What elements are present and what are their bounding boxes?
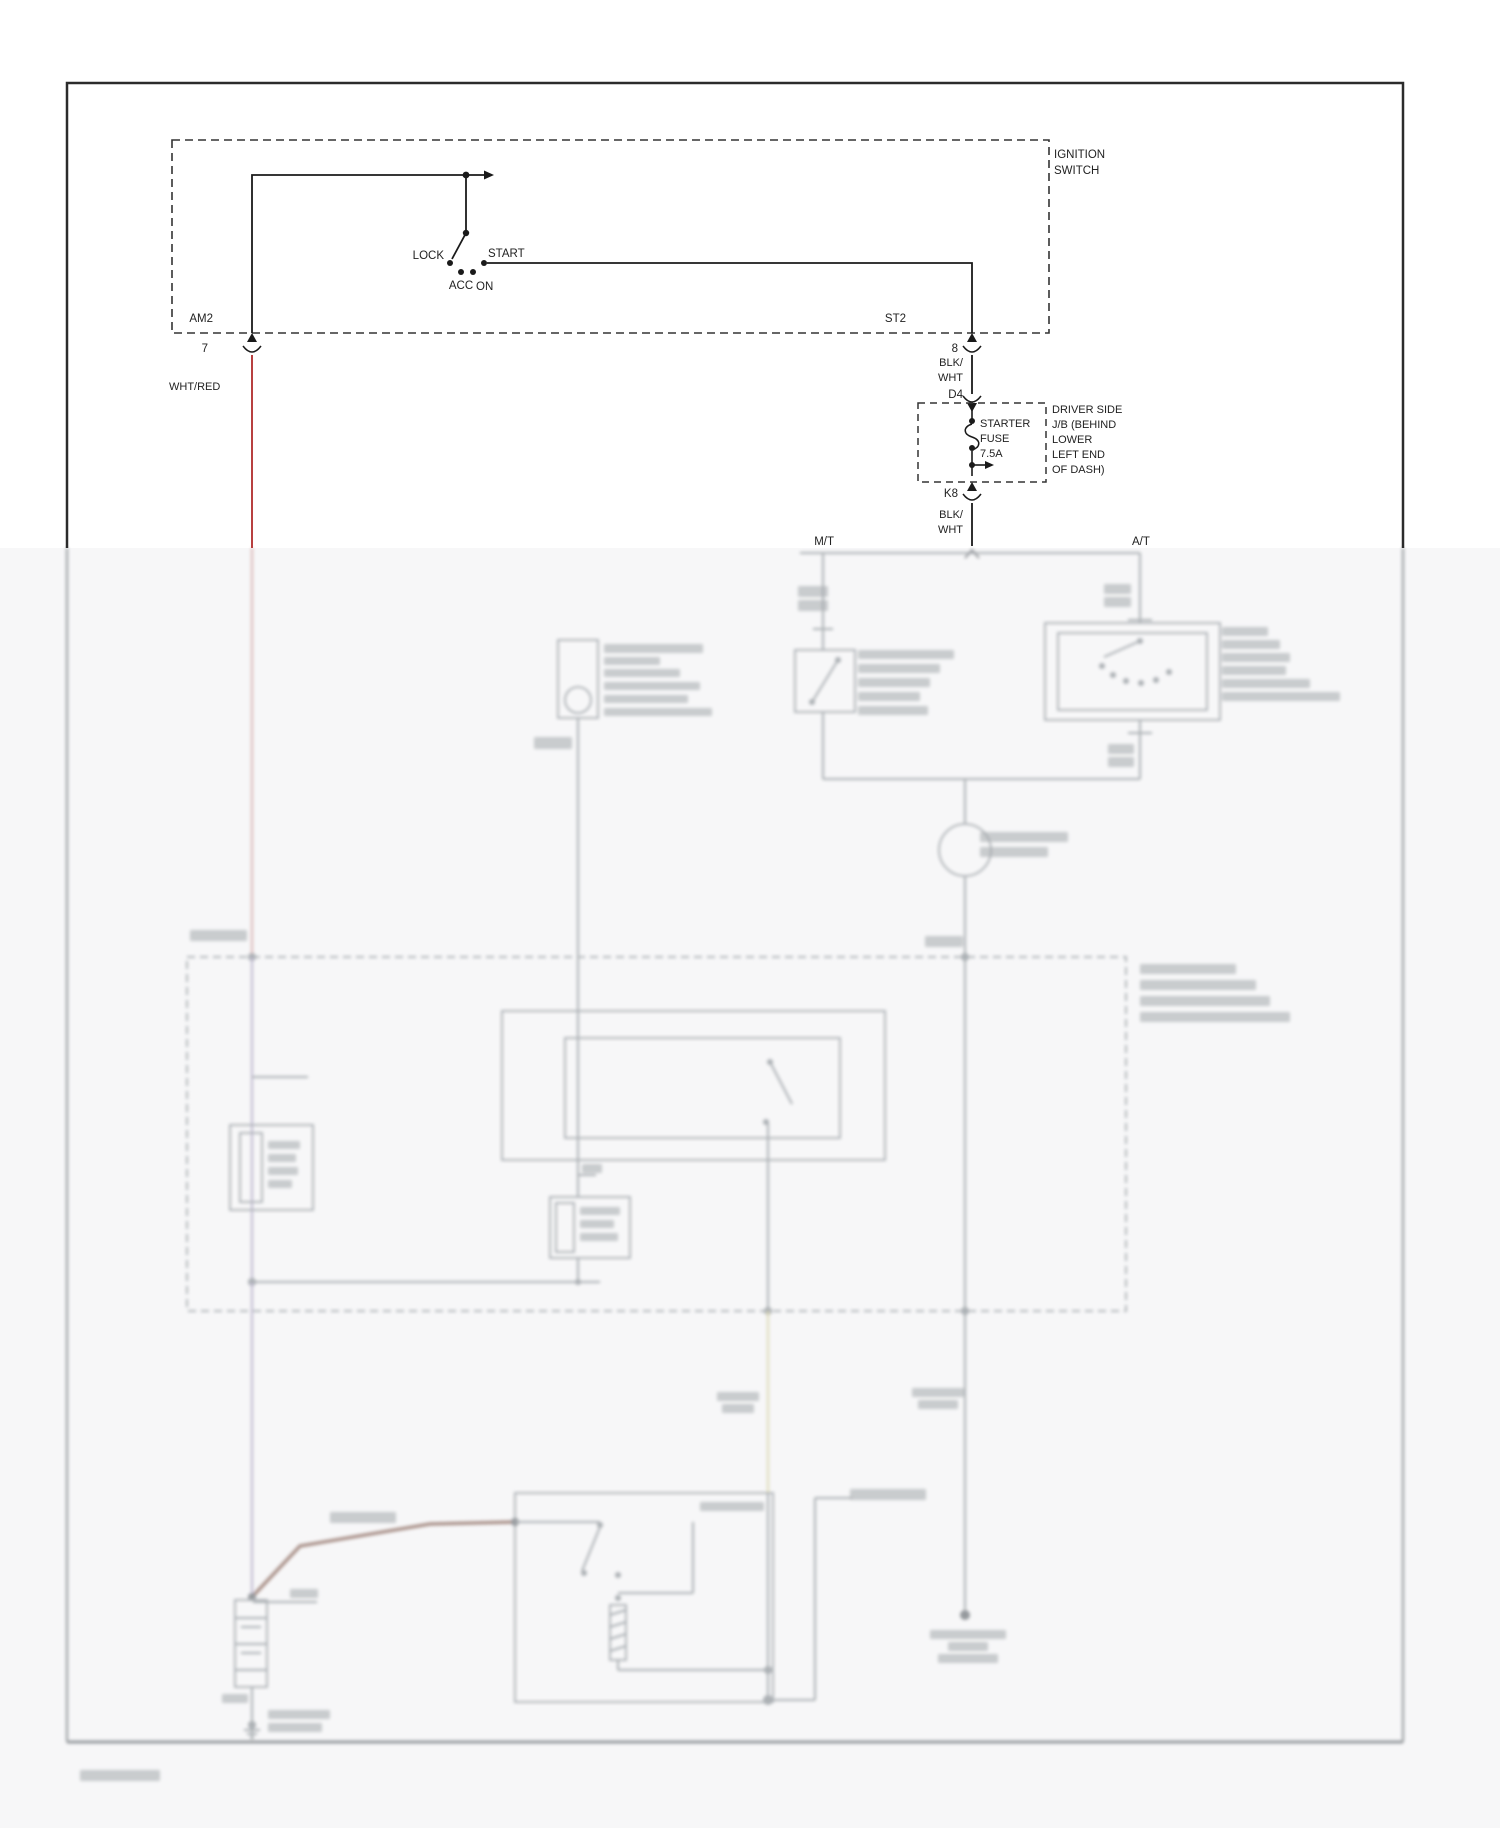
k8-label: K8 [944,488,958,500]
faded-sketch-item [1222,653,1290,662]
d4-connector [963,396,981,412]
faded-sketch-item [1166,669,1172,675]
faded-sketch-item [604,708,712,716]
faded-sketch-item [858,692,920,701]
faded-sketch-item [925,936,963,947]
mt-branch-label: M/T [814,536,834,548]
faded-sketch-item [290,1589,318,1598]
ignition-switch-label-line1: IGNITION [1054,149,1105,161]
faded-sketch-item [604,695,688,703]
pin8-label: 8 [952,343,958,355]
contact-start [481,260,487,266]
faded-sketch-item [1140,996,1270,1006]
faded-sketch-item [80,1770,160,1781]
start-label: START [488,248,525,260]
faded-sketch-item [938,1654,998,1663]
faded-sketch-item [1222,679,1310,688]
faded-sketch-item [1140,980,1256,990]
faded-sketch-item [1222,640,1280,649]
am2-connector [243,333,261,352]
contact-on [470,269,476,275]
faded-sketch-item [1222,666,1286,675]
faded-sketch-item [575,1279,581,1285]
faded-sketch-item [248,1721,256,1729]
faded-sketch-item [1104,584,1131,594]
faded-sketch-item [1108,744,1134,754]
faded-sketch-item [918,1400,958,1409]
arrow-right-icon [985,461,994,469]
faded-sketch-item [268,1167,298,1175]
ignition-switch-box [172,140,1049,333]
faded-sketch-item [980,847,1048,857]
faded-sketch-item [858,678,930,687]
ignition-key-switch [447,175,487,275]
at-branch-label: A/T [1132,536,1150,548]
faded-sketch-item [604,644,703,653]
am2-feed-wire [252,171,494,334]
faded-sketch-item [1140,1012,1290,1022]
faded-preview-zone [0,548,1500,1828]
faded-sketch-item [1222,692,1340,701]
faded-sketch-item [835,657,841,663]
faded-sketch-item [798,600,828,611]
page-border [67,83,1403,548]
faded-sketch-item [190,930,247,941]
faded-sketch-item [912,1388,964,1397]
faded-sketch-item [268,1141,300,1149]
switch-arm [452,233,466,259]
starter-fuse-label-line1: STARTER [980,418,1030,430]
lock-label: LOCK [413,250,445,262]
faded-sketch-item [717,1392,759,1401]
faded-sketch-item [980,832,1068,842]
faded-sketch-item [222,1694,248,1703]
faded-sketch-item [534,737,572,749]
faded-sketch-item [1138,680,1144,686]
starter-fuse-label-line3: 7.5A [980,448,1003,460]
faded-sketch-item [580,1233,618,1241]
arrow-right-icon [484,171,494,180]
faded-sketch-item [960,1610,970,1620]
faded-sketch-item [580,1220,614,1228]
blk-wht-label-2b: WHT [938,524,963,536]
faded-sketch-item [1140,964,1236,974]
jb-note-line4: LEFT END [1052,449,1105,461]
faded-sketch-item [1123,678,1129,684]
faded-sketch-item [930,1630,1006,1639]
faded-sketch-item [1099,663,1105,669]
faded-sketch-item [948,1642,988,1651]
faded-sketch-item [268,1710,330,1719]
faded-sketch-item [1104,597,1131,607]
blk-wht-label-2a: BLK/ [939,509,964,521]
faded-sketch-item [582,1164,602,1173]
faded-sketch-item [1137,638,1143,644]
faded-sketch-item [604,657,660,665]
jb-note-line1: DRIVER SIDE [1052,404,1122,416]
on-label: ON [476,281,493,293]
contact-lock [447,260,453,266]
am2-label: AM2 [189,313,213,325]
faded-sketch-item [604,682,700,690]
jb-note-line3: LOWER [1052,434,1092,446]
blk-wht-label-1b: WHT [938,372,963,384]
faded-sketch-item [580,1207,620,1215]
faded-sketch-item [798,586,828,597]
faded-sketch-item [615,1572,621,1578]
k8-connector [963,482,981,500]
pin7-label: 7 [202,343,208,355]
faded-sketch-item [858,650,954,659]
faded-sketch-item [1110,672,1116,678]
acc-label: ACC [449,280,473,292]
faded-sketch-item [268,1723,322,1732]
faded-sketch-item [700,1502,764,1511]
wht-red-wire-label: WHT/RED [169,381,220,393]
faded-sketch-item [268,1180,292,1188]
faded-sketch-item [615,1595,621,1601]
d4-label: D4 [948,389,963,401]
faded-sketch-item [1153,677,1159,683]
faded-sketch-item [581,1570,587,1576]
faded-sketch-item [604,669,680,677]
faded-sketch-item [850,1489,926,1500]
faded-sketch-item [1108,757,1134,767]
faded-sketch-item [330,1512,396,1523]
faded-sketch-item [1222,627,1268,636]
jb-note-line2: J/B (BEHIND [1052,419,1116,431]
faded-sketch-item [858,706,928,715]
jb-note-line5: OF DASH) [1052,464,1105,476]
contact-acc [458,269,464,275]
faded-sketch-item [722,1404,754,1413]
faded-sketch-item [858,664,940,673]
starter-fuse-label-line2: FUSE [980,433,1009,445]
blk-wht-label-1a: BLK/ [939,357,964,369]
starting-circuit-diagram: IGNITION SWITCH LOCK ACC ON START AM2 7 … [0,0,1500,1828]
st2-connector [963,333,981,352]
faded-sketch-item [809,699,815,705]
faded-sketch-item [268,1154,296,1162]
wiring-diagram-page: IGNITION SWITCH LOCK ACC ON START AM2 7 … [0,0,1500,1828]
ignition-switch-label-line2: SWITCH [1054,165,1099,177]
faded-sketch-item [597,1522,603,1528]
st2-label: ST2 [885,313,906,325]
